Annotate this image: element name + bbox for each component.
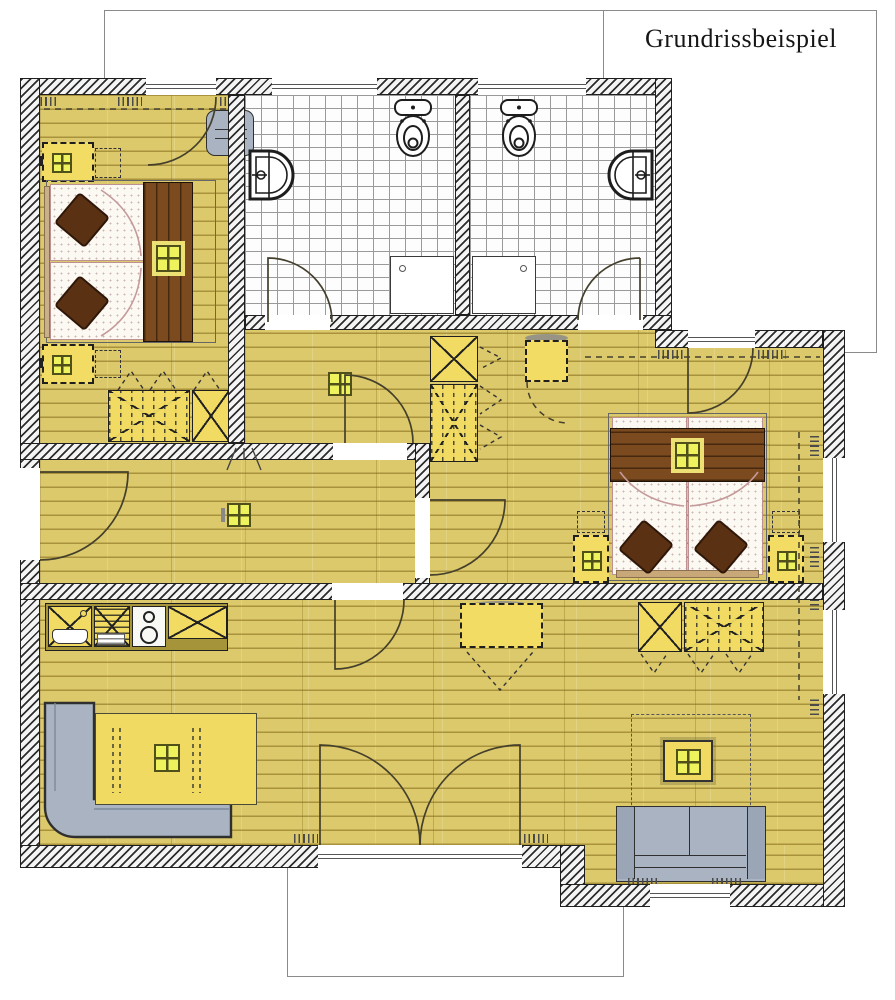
door-opening-dressing [415, 498, 430, 578]
door-threshold-bedroom2 [688, 330, 755, 348]
sofa-armrest [747, 807, 765, 879]
shower-tray [390, 256, 454, 314]
wall-right-upper [655, 78, 672, 330]
bed-head-board [610, 428, 765, 482]
sofa [616, 806, 766, 882]
radiator-icon [118, 97, 142, 106]
toilet-icon [390, 98, 436, 160]
radiator-icon [524, 834, 548, 843]
wall-bedroom1-right [228, 95, 245, 443]
terrace-outline-bottom-edge [287, 976, 624, 977]
sideboard [460, 603, 543, 648]
kitchen-sink-unit [48, 606, 92, 647]
floor-plan: Grundrissbeispiel [0, 0, 895, 1000]
nightstand-door-swing [95, 350, 121, 378]
cabinet [525, 340, 568, 382]
door-opening-bathroom1 [265, 315, 330, 330]
shower-drain [399, 265, 406, 272]
hall-table-lamp [227, 503, 251, 527]
nightstand-door-swing [577, 511, 605, 533]
window-bathroom2 [478, 78, 586, 95]
bed-foot-strip [616, 570, 759, 578]
shower-tray [472, 256, 536, 314]
sink-icon [247, 148, 299, 202]
sink-icon [603, 148, 655, 202]
wall-hall-bottom [20, 583, 823, 600]
plan-title: Grundrissbeispiel [615, 24, 867, 54]
door-opening-hall-living [332, 583, 403, 600]
radiator-icon [810, 545, 819, 567]
window-living-bottom [650, 884, 730, 907]
radiator-icon [758, 350, 786, 359]
nightstand [768, 535, 804, 583]
window-bedroom2-right [823, 458, 845, 542]
terrace-outline-left-edge [287, 868, 288, 977]
sofa-back-seam [689, 807, 690, 855]
sofa-seat-line [635, 855, 746, 856]
radiator-icon [658, 350, 684, 359]
coffee-table [663, 740, 713, 782]
wardrobe [430, 384, 478, 462]
wardrobe [430, 336, 478, 382]
door-opening-bathroom2 [578, 315, 643, 330]
nightstand-door-swing [772, 511, 800, 533]
wardrobe [108, 390, 190, 442]
sofa-seat-line [635, 867, 746, 868]
bed-foot-board [143, 182, 193, 342]
wardrobe [638, 602, 682, 652]
shower-drain [520, 265, 527, 272]
toilet-icon [496, 98, 542, 160]
wardrobe [192, 390, 230, 442]
radiator-icon [810, 434, 819, 456]
french-door-threshold [318, 845, 522, 868]
wall-between-bathrooms [455, 95, 470, 315]
window-bathroom1 [272, 78, 377, 95]
hall-table-lamp [328, 372, 352, 396]
nightstand [573, 535, 609, 583]
sofa-armrest [617, 807, 635, 879]
radiator-icon [294, 834, 318, 843]
hall-table-shadow [221, 508, 225, 522]
radiator-icon [810, 697, 819, 715]
nightstand-door-swing [95, 148, 121, 178]
door-opening-corridor [333, 443, 407, 460]
door-threshold-bedroom1 [146, 78, 216, 95]
kitchen-stove-unit [132, 606, 166, 647]
kitchen-counter [45, 603, 228, 651]
door-opening-entrance [20, 468, 40, 560]
window-living-right [823, 610, 845, 694]
terrace-outline-right-edge [623, 907, 624, 977]
nightstand [42, 344, 94, 384]
kitchen-drainer-unit [94, 606, 130, 647]
wardrobe [684, 602, 764, 652]
kitchen-cabinet-unit [168, 606, 227, 639]
nightstand [42, 142, 94, 182]
dining-table [95, 713, 257, 805]
